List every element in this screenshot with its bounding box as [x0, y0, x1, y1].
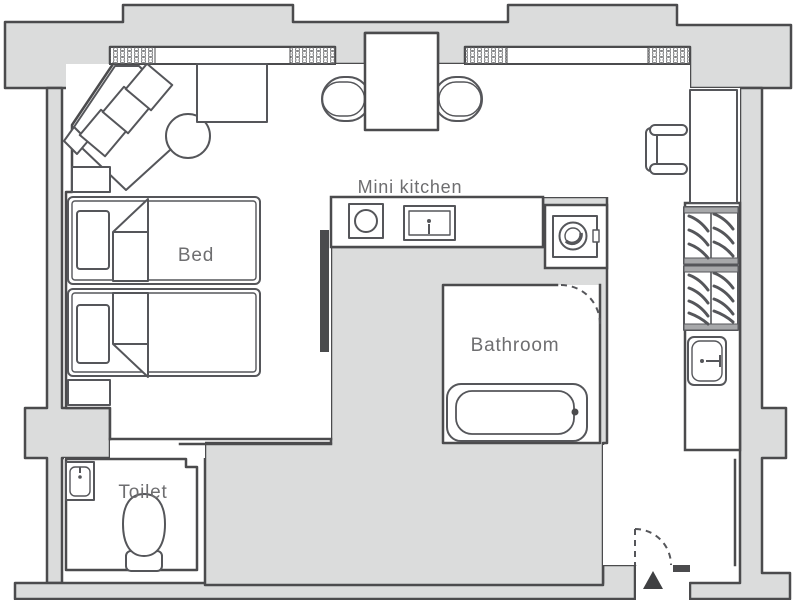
pillow-icon	[77, 305, 109, 363]
side-cabinet-icon	[197, 64, 267, 122]
window-hatch-icon	[290, 47, 335, 64]
bathtub-icon	[447, 384, 587, 441]
stove-icon	[349, 204, 383, 238]
floor-hall-to-toilet	[110, 438, 205, 458]
kitchen-sink-icon	[404, 206, 455, 240]
window-hatch-icon	[110, 47, 155, 64]
floorplan-image: Bed Mini kitchen Bathroom Toilet	[0, 0, 800, 600]
pillow-icon	[77, 211, 109, 269]
twin-bed-icon	[68, 289, 260, 377]
label-mini-kitchen: Mini kitchen	[358, 177, 463, 197]
tv-board-icon	[320, 230, 329, 352]
floor-corridor	[603, 445, 735, 565]
wardrobe-hangers-icon	[684, 207, 738, 264]
dining-table-icon	[365, 33, 438, 130]
twin-bed-icon	[68, 197, 260, 284]
drain-icon	[572, 409, 579, 416]
wardrobe-hangers-icon	[684, 266, 738, 330]
dining-chair-icon	[323, 82, 365, 116]
toilet-bowl-icon	[123, 494, 165, 571]
label-bathroom: Bathroom	[471, 335, 560, 356]
window-hatch-icon	[648, 47, 690, 64]
washbasin-icon	[688, 337, 726, 385]
dining-chair-icon	[439, 82, 481, 116]
nightstand-icon	[72, 167, 110, 192]
floor-bed-area-south	[110, 408, 331, 439]
floorplan-svg: Bed Mini kitchen Bathroom Toilet	[0, 0, 800, 600]
label-toilet: Toilet	[118, 482, 167, 503]
label-bed: Bed	[178, 245, 214, 266]
window-hatch-icon	[465, 47, 507, 64]
wall-entrance-stub	[673, 565, 690, 572]
toilet-washbasin-icon	[66, 462, 94, 500]
nightstand-icon	[68, 380, 110, 405]
desk-icon	[690, 90, 737, 203]
washing-machine-icon	[553, 216, 599, 257]
